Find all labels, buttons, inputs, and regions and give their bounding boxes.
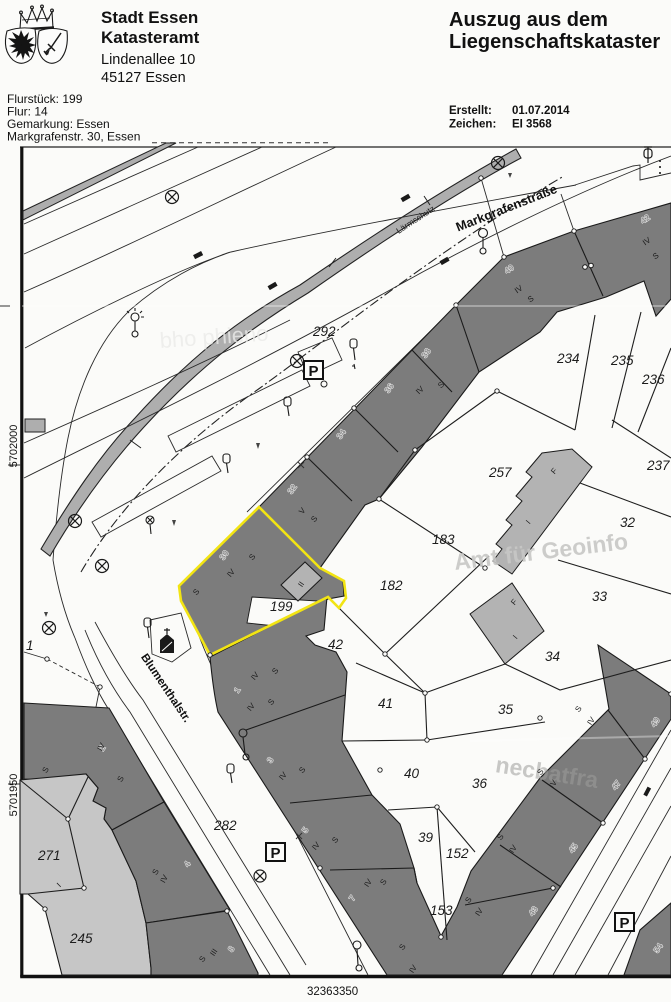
svg-text:39: 39 xyxy=(418,830,434,845)
svg-text:Liegenschaftskataster: Liegenschaftskataster xyxy=(449,31,660,53)
svg-text:183: 183 xyxy=(432,532,455,547)
svg-text:Katasteramt: Katasteramt xyxy=(101,28,200,47)
svg-text:237: 237 xyxy=(646,458,670,473)
svg-text:34: 34 xyxy=(545,649,560,664)
svg-text:236: 236 xyxy=(641,372,665,387)
svg-text:35: 35 xyxy=(498,702,514,717)
svg-text:Erstellt:: Erstellt: xyxy=(449,105,492,117)
svg-text:32363350: 32363350 xyxy=(307,986,358,998)
svg-text:EI 3568: EI 3568 xyxy=(512,119,552,131)
svg-text:Markgrafenstr. 30, Essen: Markgrafenstr. 30, Essen xyxy=(7,130,140,144)
svg-text:5701950: 5701950 xyxy=(8,774,20,817)
svg-text:P: P xyxy=(619,915,629,932)
svg-text:271: 271 xyxy=(37,848,61,863)
svg-text:32: 32 xyxy=(620,515,636,530)
svg-text:152: 152 xyxy=(446,846,469,861)
svg-text:36: 36 xyxy=(472,776,488,791)
svg-text:P: P xyxy=(308,363,318,380)
svg-text:Lindenallee 10: Lindenallee 10 xyxy=(101,52,195,68)
svg-text:Auszug aus dem: Auszug aus dem xyxy=(449,9,608,31)
svg-text:199: 199 xyxy=(270,599,293,614)
svg-text:41: 41 xyxy=(378,696,393,711)
svg-text:245: 245 xyxy=(69,931,93,946)
svg-text:40: 40 xyxy=(404,766,420,781)
svg-text:1: 1 xyxy=(26,638,34,653)
svg-text:P: P xyxy=(270,845,280,862)
svg-text:5702000: 5702000 xyxy=(8,425,20,468)
svg-text:Stadt Essen: Stadt Essen xyxy=(101,8,198,27)
svg-text:33: 33 xyxy=(592,589,608,604)
svg-text:292: 292 xyxy=(312,324,336,339)
svg-text:257: 257 xyxy=(488,465,512,480)
svg-text:235: 235 xyxy=(610,353,634,368)
svg-text:Zeichen:: Zeichen: xyxy=(449,119,496,131)
svg-text:01.07.2014: 01.07.2014 xyxy=(512,105,570,117)
svg-text:282: 282 xyxy=(213,818,237,833)
svg-text:182: 182 xyxy=(380,578,403,593)
svg-text:153: 153 xyxy=(430,903,453,918)
svg-text:234: 234 xyxy=(556,351,580,366)
svg-text:42: 42 xyxy=(328,637,344,652)
svg-text:45127 Essen: 45127 Essen xyxy=(101,70,186,86)
